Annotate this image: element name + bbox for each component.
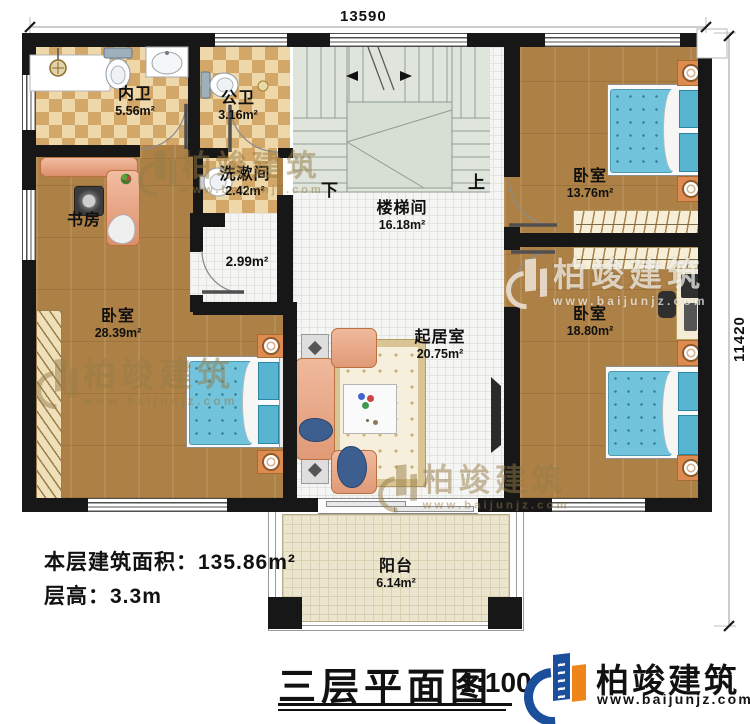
brand-logo-building-blue [553, 653, 570, 701]
stair-graphic [293, 47, 490, 192]
door-arc [230, 104, 278, 152]
sink-icon [146, 47, 188, 77]
door-arc [202, 251, 244, 293]
title-underline-thin [278, 709, 506, 711]
wash-basin-icon [200, 168, 232, 196]
floor-height-text: 层高：3.3m [44, 580, 296, 614]
door-arc [140, 103, 186, 149]
corner-offset-box [30, 55, 110, 91]
door-arc [511, 251, 555, 295]
dimension-height: 11420 [731, 316, 748, 362]
drawing-scale: 1:100 [460, 667, 532, 699]
toilet-icon [201, 72, 238, 98]
stair-up-label: 上 [468, 168, 485, 193]
floor-area-text: 本层建筑面积：135.86m² [44, 546, 296, 580]
title-underline [278, 703, 512, 706]
door-arc [509, 178, 557, 226]
brand-website: www.baijunjz.com [597, 691, 750, 707]
shower-icon [50, 48, 66, 76]
brand-logo-building-orange [572, 664, 586, 702]
toilet-icon [104, 48, 132, 89]
floor-drain-icon [258, 81, 268, 91]
stair-down-label: 下 [321, 176, 338, 201]
plan-linework [0, 0, 750, 724]
dimension-width: 13590 [340, 8, 387, 25]
floor-info: 本层建筑面积：135.86m² 层高：3.3m [44, 546, 296, 613]
brand-logo-icon [522, 652, 592, 718]
tv-icon [491, 377, 501, 453]
floorplan-canvas: 内卫 5.56m² 公卫 3.16m² 洗漱间 2.42m² 书房 卧室 28.… [0, 0, 750, 724]
